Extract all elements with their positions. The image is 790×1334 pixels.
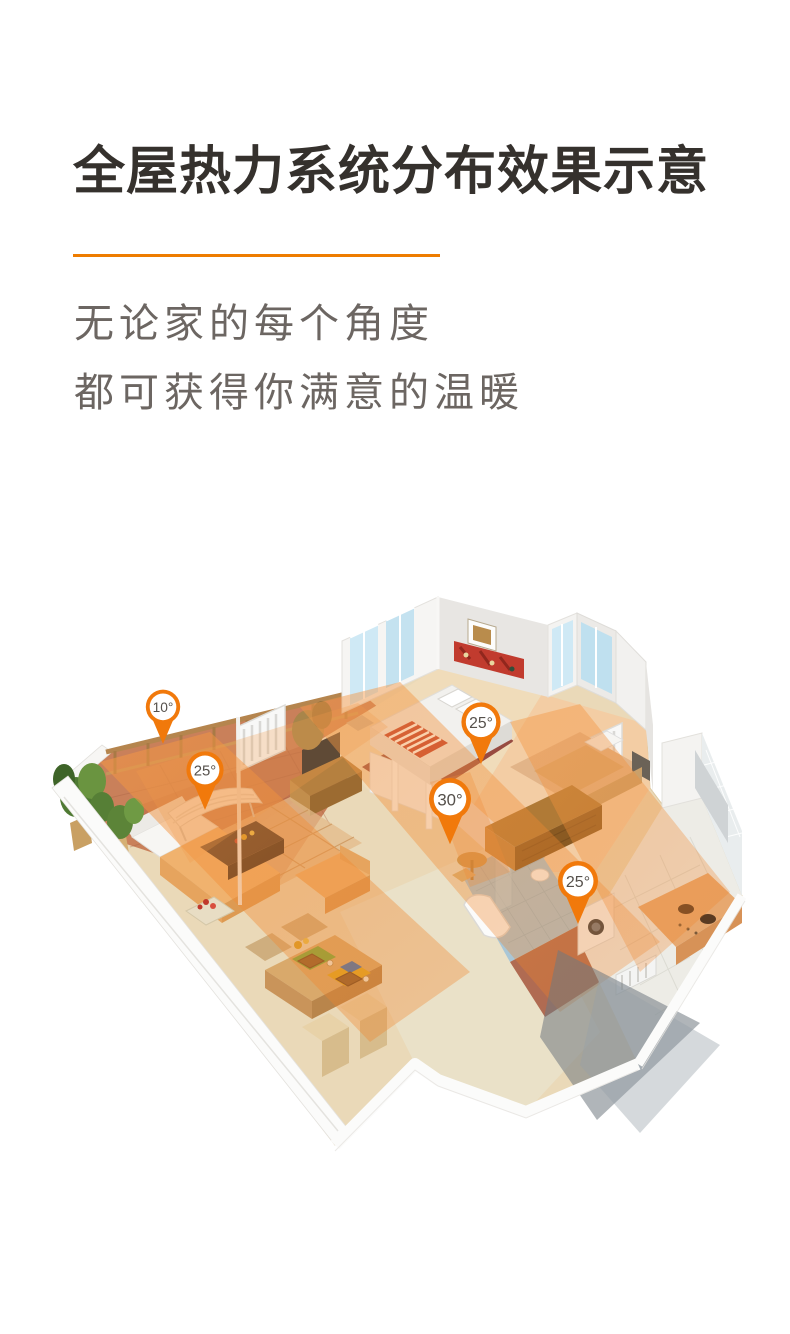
pin-tail: [438, 816, 462, 844]
subtitle-line-1: 无论家的每个角度: [74, 301, 434, 347]
temp-pin-2: 25°: [183, 748, 227, 816]
pin-tail: [470, 738, 493, 764]
temp-pin-4: 30°: [428, 777, 472, 845]
temp-pin-1: 10°: [141, 685, 185, 753]
title-underline: [73, 254, 440, 257]
pin-tail: [567, 897, 590, 924]
apartment-isometric-illustration: [40, 575, 760, 1160]
poster-page: 全屋热力系统分布效果示意 无论家的每个角度 都可获得你满意的温暖: [0, 0, 790, 1334]
pin-temperature-label: 25°: [566, 874, 590, 891]
page-title: 全屋热力系统分布效果示意: [73, 142, 709, 202]
temp-pin-3: 25°: [459, 700, 503, 768]
pin-tail: [153, 721, 173, 744]
temp-pin-5: 25°: [556, 859, 600, 927]
pin-temperature-label: 25°: [194, 764, 217, 780]
pin-temperature-label: 30°: [437, 790, 462, 809]
pin-temperature-label: 10°: [153, 700, 174, 715]
pin-tail: [194, 785, 215, 810]
subtitle-line-2: 都可获得你满意的温暖: [74, 370, 524, 416]
pin-temperature-label: 25°: [469, 715, 493, 732]
